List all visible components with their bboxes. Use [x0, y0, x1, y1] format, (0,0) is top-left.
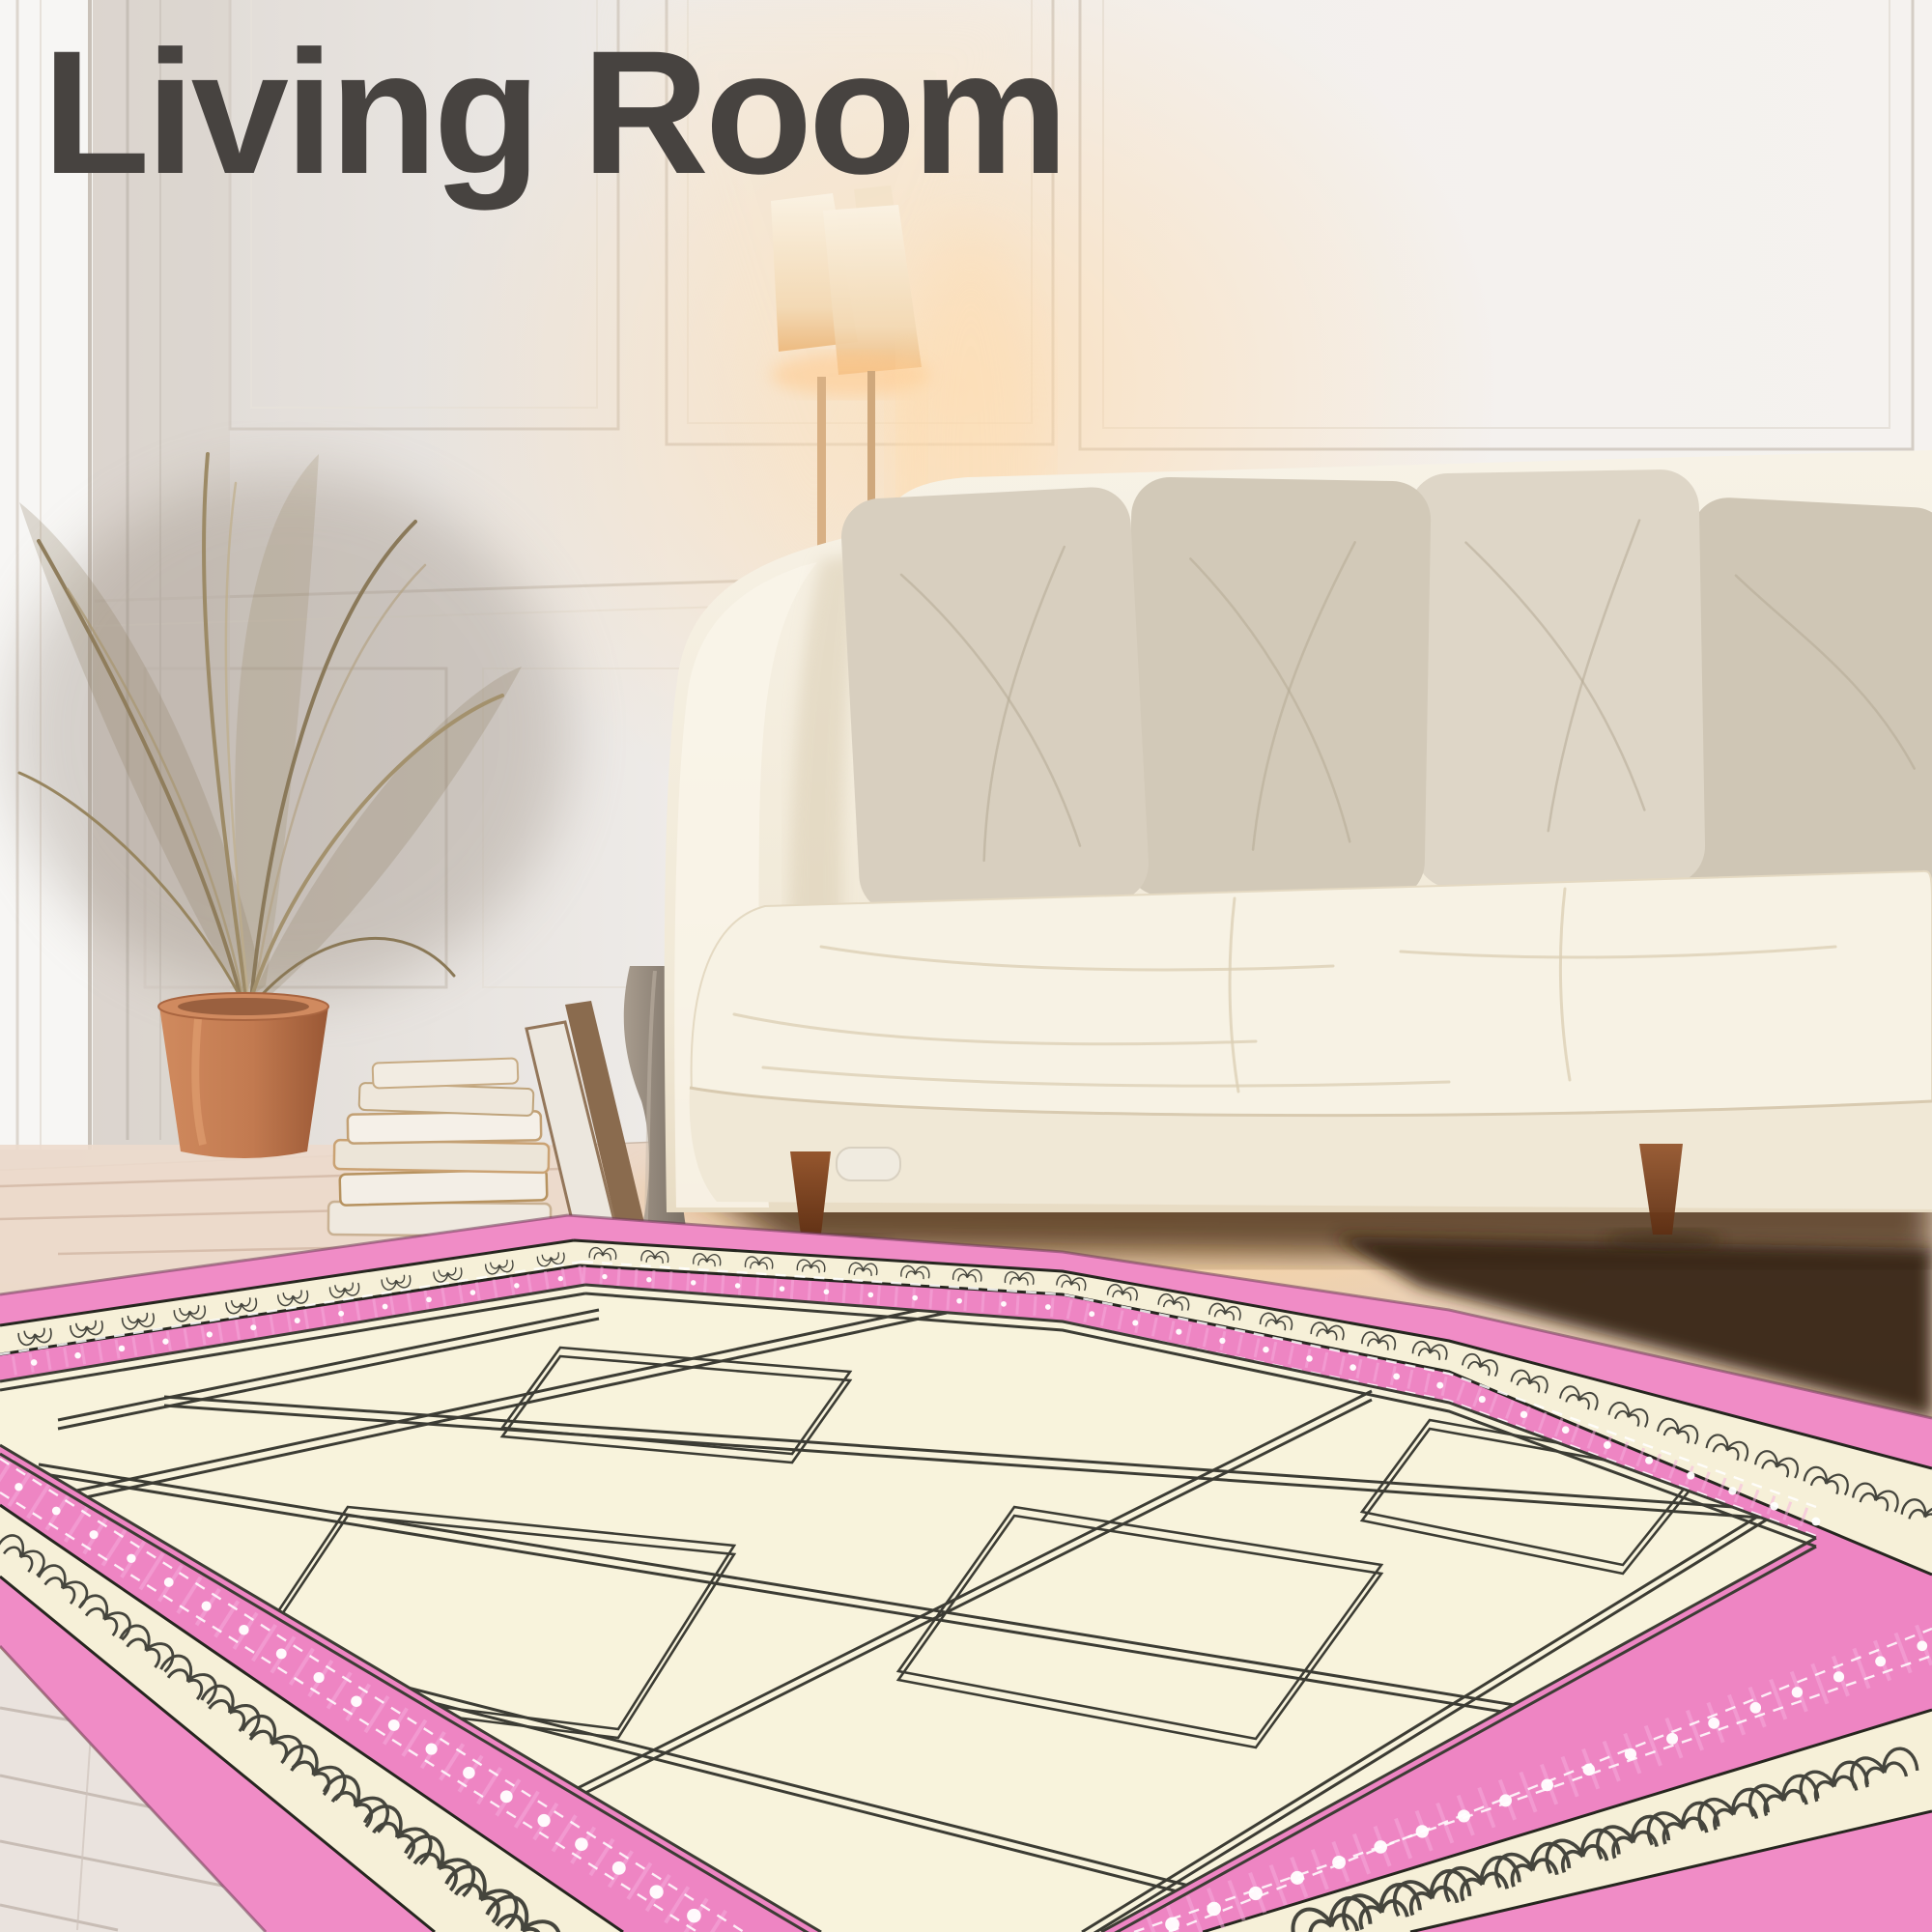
pillow-4	[1672, 496, 1932, 914]
terracotta-pot	[158, 993, 328, 1158]
pillow-2	[1124, 476, 1432, 900]
living-room-scene	[0, 0, 1932, 1932]
seat-cushion	[692, 871, 1932, 1121]
pillow-1	[839, 485, 1151, 915]
lamp-pole	[817, 377, 826, 570]
living-room-mockup: Living Room	[0, 0, 1932, 1932]
sofa-foot-white	[837, 1148, 900, 1180]
sofa	[665, 450, 1932, 1261]
page-title: Living Room	[43, 17, 1065, 208]
throw-pillows	[839, 469, 1932, 915]
pillow-3	[1408, 469, 1705, 889]
